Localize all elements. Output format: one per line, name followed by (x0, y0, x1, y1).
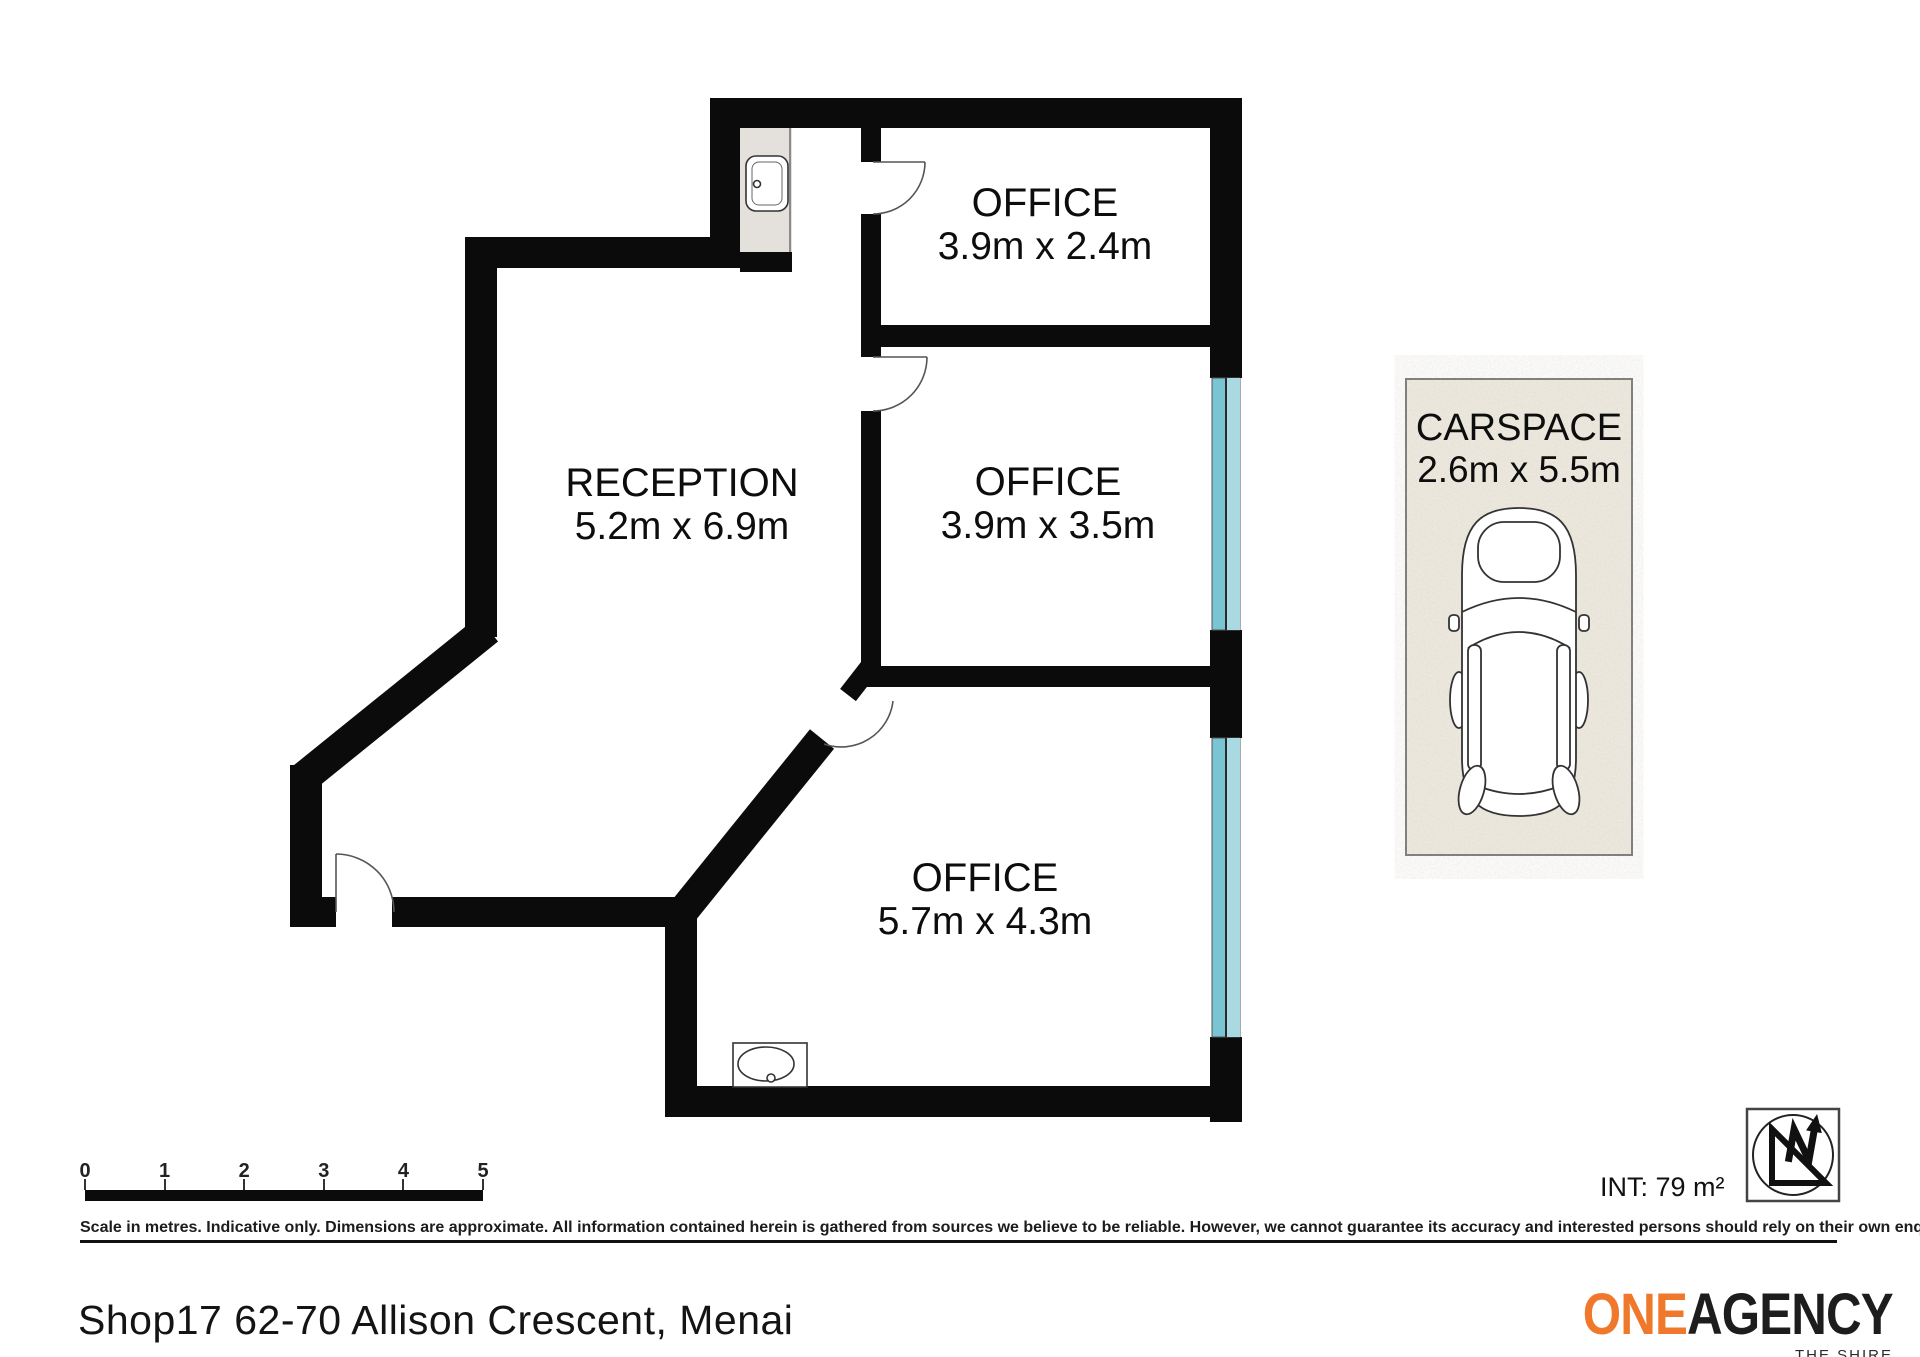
room-dims: 3.9m x 2.4m (938, 225, 1153, 269)
logo-one-text: ONE (1583, 1282, 1687, 1347)
room-label-office-bottom: OFFICE 5.7m x 4.3m (878, 856, 1093, 944)
agency-logo: ONEAGENCY THE SHIRE (1528, 1286, 1893, 1357)
north-arrow-icon (1747, 1109, 1839, 1201)
agency-logo-wordmark: ONEAGENCY (1583, 1286, 1893, 1344)
car-top-view-icon (1449, 508, 1589, 817)
divider-rule (80, 1240, 1837, 1243)
logo-tagline: THE SHIRE (1528, 1348, 1893, 1357)
internal-area-value: INT: 79 m² (1600, 1172, 1725, 1203)
basin-icon (733, 1043, 807, 1087)
carspace-name: CARSPACE (1416, 407, 1622, 449)
scale-tick (323, 1179, 325, 1190)
room-label-office-top: OFFICE 3.9m x 2.4m (938, 181, 1153, 269)
carspace-dims: 2.6m x 5.5m (1416, 449, 1622, 491)
room-dims: 3.9m x 3.5m (941, 504, 1156, 548)
room-dims: 5.7m x 4.3m (878, 900, 1093, 944)
room-dims: 5.2m x 6.9m (565, 505, 798, 549)
scale-tick (482, 1179, 484, 1190)
floorplan-page: OFFICE 3.9m x 2.4m OFFICE 3.9m x 3.5m OF… (0, 0, 1920, 1357)
room-label-office-middle: OFFICE 3.9m x 3.5m (941, 460, 1156, 548)
disclaimer-text: Scale in metres. Indicative only. Dimens… (80, 1219, 1920, 1237)
room-name: OFFICE (938, 181, 1153, 225)
room-label-reception: RECEPTION 5.2m x 6.9m (565, 461, 798, 549)
scale-bar: 0 1 2 3 4 5 (85, 1160, 483, 1202)
scale-tick (402, 1179, 404, 1190)
room-name: OFFICE (878, 856, 1093, 900)
property-address: Shop17 62-70 Allison Crescent, Menai (78, 1297, 793, 1344)
room-name: RECEPTION (565, 461, 798, 505)
scale-tick (243, 1179, 245, 1190)
sink-icon (746, 156, 788, 211)
scale-bar-rule (85, 1190, 483, 1201)
scale-tick (164, 1179, 166, 1190)
room-name: OFFICE (941, 460, 1156, 504)
scale-tick (84, 1179, 86, 1190)
carspace-label: CARSPACE 2.6m x 5.5m (1416, 407, 1622, 491)
logo-agency-text: AGENCY (1687, 1282, 1893, 1347)
